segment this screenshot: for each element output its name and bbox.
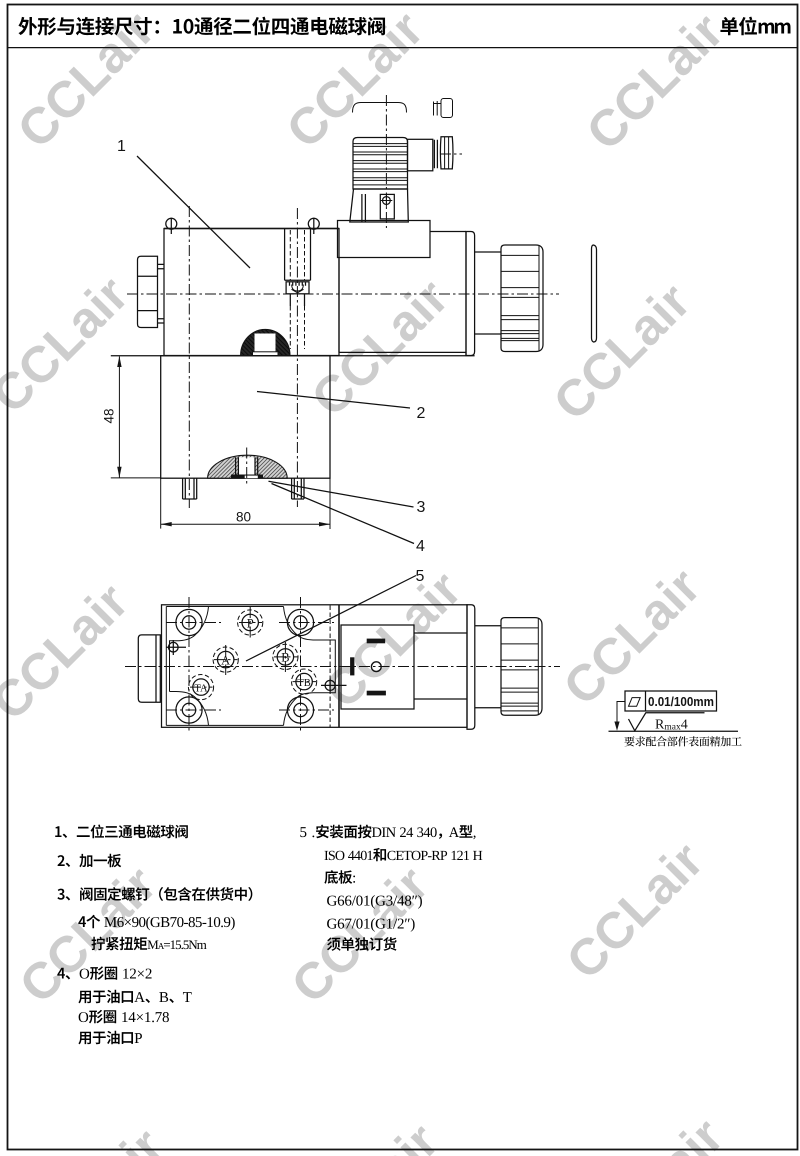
svg-text:A: A — [221, 653, 230, 667]
svg-text:5: 5 — [416, 568, 425, 585]
svg-text:0.01/100mm: 0.01/100mm — [648, 695, 714, 709]
svg-text:B: B — [281, 651, 289, 665]
svg-text:80: 80 — [236, 510, 251, 525]
svg-text:4: 4 — [416, 538, 425, 555]
svg-text:TA: TA — [194, 683, 208, 694]
svg-text:TB: TB — [297, 678, 310, 689]
svg-text:3: 3 — [417, 499, 426, 516]
svg-text:48: 48 — [102, 408, 117, 423]
svg-text:1: 1 — [117, 138, 126, 155]
svg-text:P: P — [247, 616, 254, 630]
svg-text:2: 2 — [417, 405, 426, 422]
